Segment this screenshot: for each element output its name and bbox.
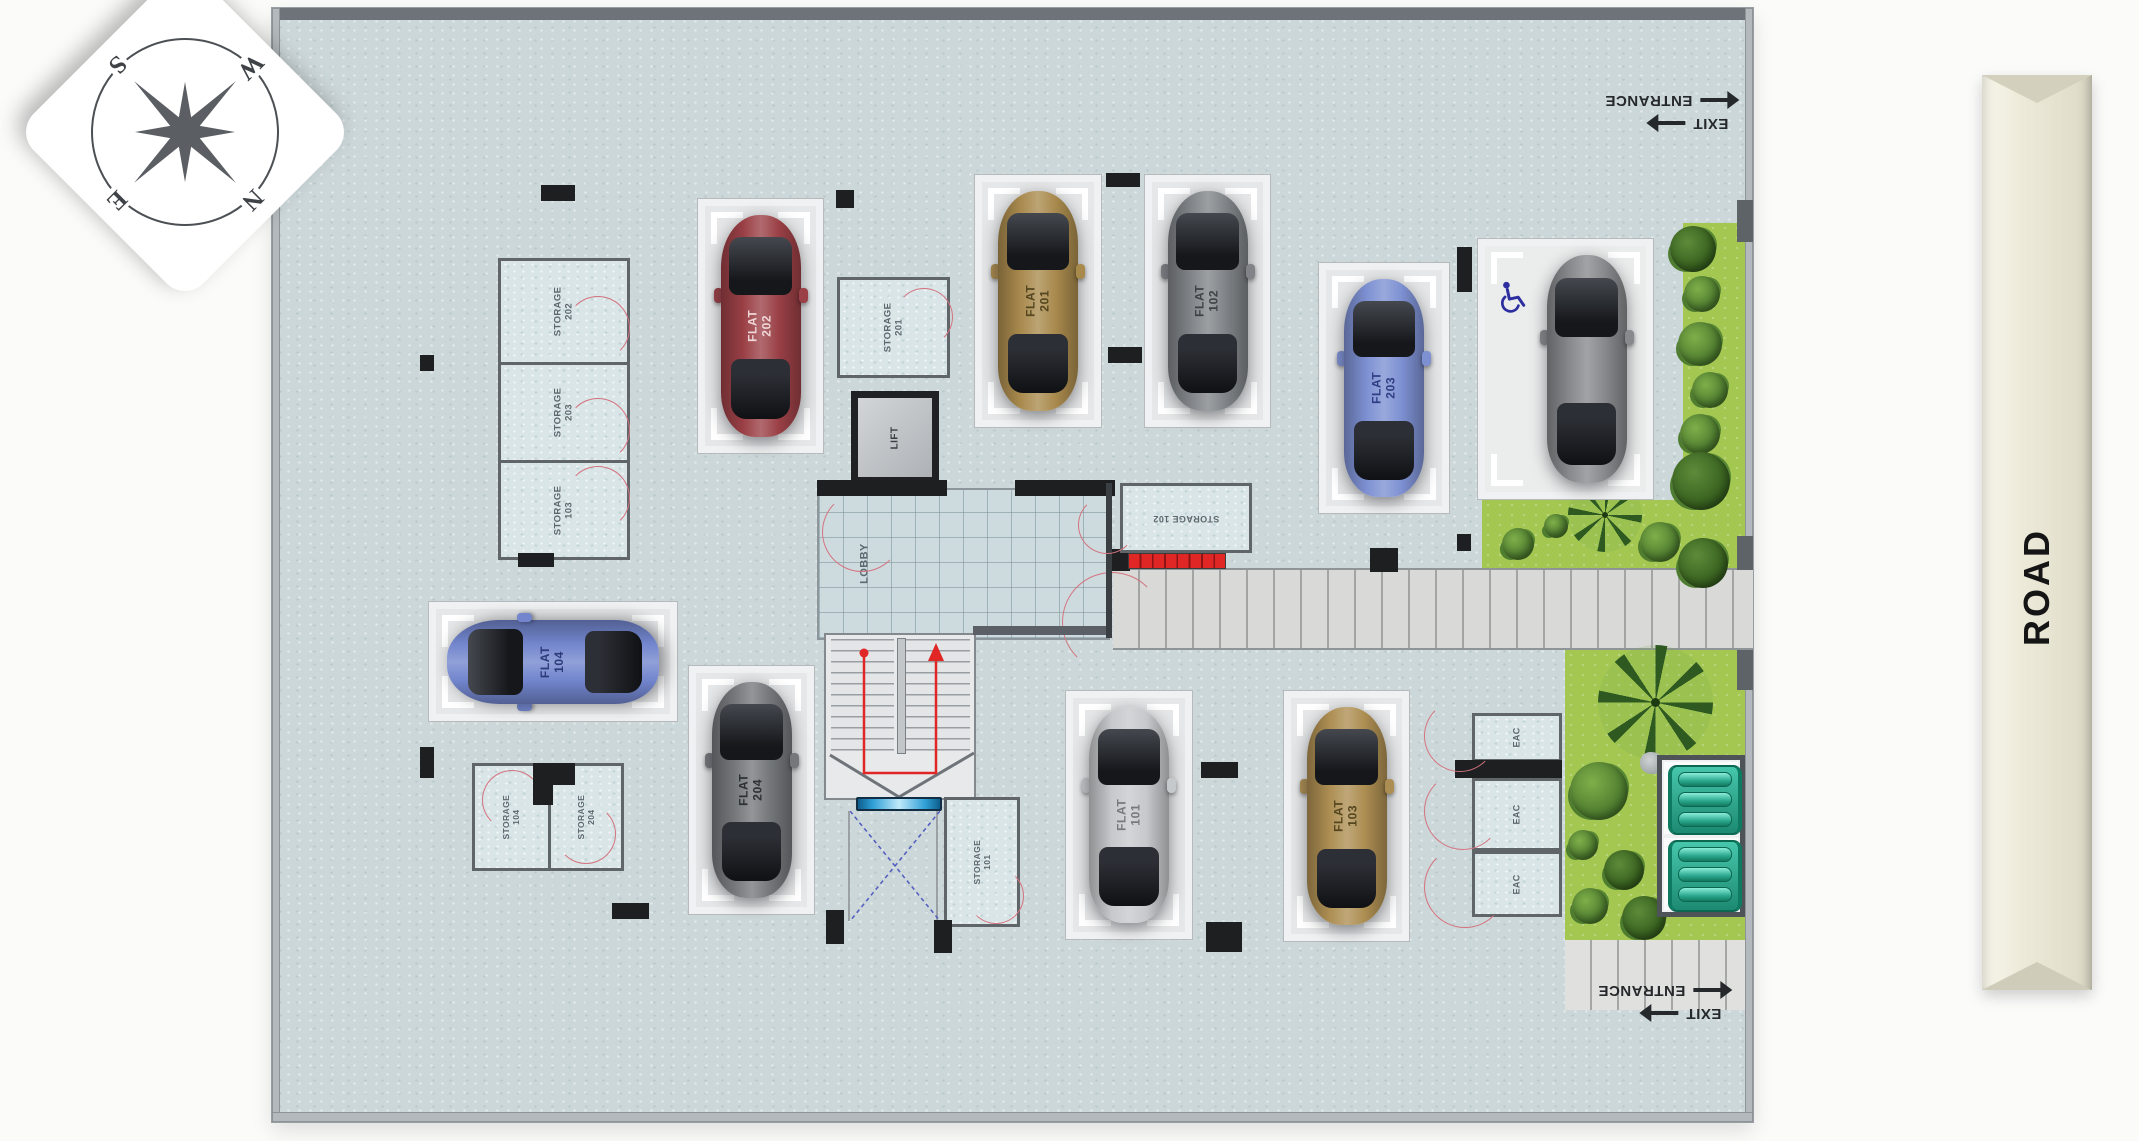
room-label: STORAGE 102 (1153, 513, 1219, 524)
car: FLAT 103 (1307, 707, 1387, 925)
car: FLAT 201 (998, 191, 1078, 411)
tree (1678, 538, 1728, 588)
tree (1684, 276, 1720, 312)
tree (1568, 830, 1598, 860)
wheelchair-icon (1491, 276, 1534, 319)
parking-spot-flat-102: FLAT 102 (1144, 174, 1271, 428)
door-arc (1424, 700, 1496, 772)
palm-tree (1598, 645, 1713, 760)
parking-spot-label: FLAT 103 (1333, 800, 1361, 832)
exit-sign: EXIT (1605, 115, 1728, 132)
car: FLAT 104 (447, 620, 659, 704)
entrance-label: ENTRANCE (1598, 982, 1685, 999)
exit-sign: EXIT (1598, 1005, 1721, 1022)
room-lift: LIFT (851, 391, 939, 484)
entrance-sign: ENTRANCE (1598, 982, 1721, 999)
door-arc (1424, 846, 1506, 928)
parking-spot-flat-201: FLAT 201 (974, 174, 1102, 428)
tree (1670, 226, 1716, 272)
stair-hazard-strip (1128, 553, 1226, 569)
column (518, 553, 554, 567)
car (1547, 255, 1627, 483)
parking-spot-flat-203: FLAT 203 (1318, 262, 1450, 514)
column (1457, 247, 1472, 292)
tree (1544, 514, 1568, 538)
column (420, 747, 434, 778)
staircase (824, 633, 976, 800)
glass-door (856, 797, 942, 811)
door-arc (566, 466, 630, 530)
arrow-right-icon (1650, 1012, 1678, 1016)
parking-spot-label: FLAT 203 (1370, 372, 1398, 404)
tree (1692, 372, 1728, 408)
wall-segment (973, 626, 1110, 635)
car: FLAT 102 (1168, 191, 1248, 411)
arrow-left-icon (1693, 989, 1721, 993)
arrow-left-icon (1700, 99, 1728, 103)
wall-stub (1737, 200, 1753, 242)
sign-bottom-right: EXIT ENTRANCE (1598, 982, 1721, 1022)
wall-stub (1737, 536, 1753, 570)
column (612, 903, 649, 919)
arrow-right-icon (1657, 122, 1685, 126)
tree (1680, 414, 1720, 454)
tree (1604, 850, 1644, 890)
parking-spot-label: FLAT 104 (539, 645, 567, 677)
door-arc (895, 288, 953, 346)
door-arc (566, 296, 630, 360)
wall-bottom (272, 1112, 1753, 1122)
exit-label: EXIT (1693, 115, 1728, 132)
room-label: LIFT (889, 426, 901, 449)
car: FLAT 202 (721, 215, 801, 437)
column (934, 920, 952, 953)
exit-label: EXIT (1686, 1005, 1721, 1022)
car: FLAT 204 (712, 682, 792, 898)
water-tank (1668, 840, 1742, 912)
column (1201, 762, 1238, 778)
drive-ramp (1113, 568, 1753, 650)
door-arc (1078, 496, 1136, 554)
door-arc (1062, 572, 1162, 672)
parking-spot-label: FLAT 204 (738, 774, 766, 806)
entrance-sign: ENTRANCE (1605, 92, 1728, 109)
void-area (848, 811, 938, 921)
room-label: EAC (1512, 727, 1523, 747)
column (826, 910, 844, 944)
door-arc (566, 398, 630, 462)
column (1106, 173, 1140, 187)
parking-spot-flat-101: FLAT 101 (1065, 690, 1193, 940)
parking-spot-flat-104: FLAT 104 (428, 601, 678, 722)
door-arc (968, 868, 1024, 924)
column (533, 763, 553, 805)
sign-top-right: EXIT ENTRANCE (1605, 92, 1728, 132)
water-tank (1668, 765, 1742, 835)
door-arc (1424, 772, 1502, 850)
tree (1572, 888, 1608, 924)
parking-spot-label: FLAT 102 (1194, 285, 1222, 317)
column (1370, 548, 1398, 572)
column (836, 190, 854, 208)
room-storage-102: STORAGE 102 (1120, 483, 1252, 553)
parking-spot-accessible (1477, 238, 1654, 500)
column (1206, 922, 1242, 952)
room-label: EAC (1512, 804, 1523, 824)
parking-spot-flat-103: FLAT 103 (1283, 690, 1410, 942)
column (541, 185, 575, 201)
parking-spot-label: FLAT 202 (747, 310, 775, 342)
wall-segment (817, 480, 947, 496)
car: FLAT 203 (1344, 279, 1424, 497)
tree (1640, 522, 1680, 562)
column (1108, 347, 1142, 363)
tree (1672, 452, 1730, 510)
door-arc (822, 492, 902, 572)
parking-spot-flat-204: FLAT 204 (688, 665, 815, 915)
parking-spot-flat-202: FLAT 202 (697, 198, 824, 454)
stair-path-overlay (826, 635, 978, 802)
tree (1678, 322, 1722, 366)
tree (1502, 528, 1534, 560)
room-label: EAC (1512, 874, 1523, 894)
column (420, 355, 434, 371)
road-label: ROAD (2016, 528, 2058, 646)
wall-top (272, 8, 1753, 20)
parking-spot-label: FLAT 101 (1115, 799, 1143, 831)
wall-segment (1015, 480, 1115, 496)
parking-spot-label: FLAT 201 (1024, 285, 1052, 317)
road-sign: ROAD (1982, 75, 2092, 990)
door-arc (556, 804, 616, 864)
column (1457, 534, 1471, 551)
car: FLAT 101 (1089, 707, 1169, 923)
tree (1570, 762, 1628, 820)
floor-plan-page: STORAGE 202 STORAGE 203 STORAGE 103 STOR… (0, 0, 2139, 1141)
wall-stub (1737, 650, 1753, 690)
entrance-label: ENTRANCE (1605, 92, 1692, 109)
